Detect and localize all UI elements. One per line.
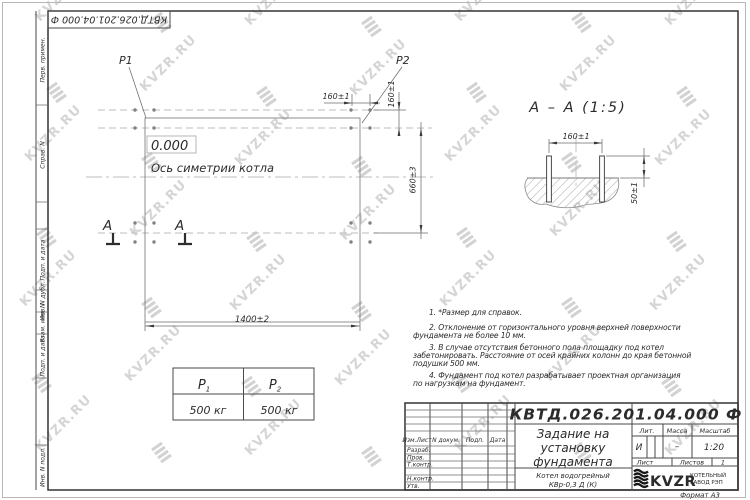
col-header-n-dokum: N докум. (432, 437, 460, 444)
drawing-sheet: KVZR.RU Перв. примен. Справ. N Подп. и д… (0, 0, 750, 500)
watermark-text (332, 326, 395, 389)
watermark-logo-icon (562, 153, 581, 172)
dim-section-spacing: 160±1 (549, 132, 602, 153)
watermark-text (227, 251, 290, 314)
note-line-3: фундамента не более 10 мм. (413, 331, 526, 340)
watermark-logo-icon (47, 83, 66, 102)
kvzr-spring-icon (634, 470, 648, 487)
top-stamp: КВТД.026.201.04.000 Ф (48, 11, 170, 28)
mass-value: – (675, 442, 680, 452)
watermark-text (652, 106, 715, 169)
load-table-header-p2: P2 (269, 378, 282, 394)
margin-label-podp-data-2: Подп. и дата (40, 335, 47, 376)
watermark-logo-icon (242, 377, 261, 396)
section-view-title: А – А (1:5) (528, 100, 627, 116)
watermark-text (242, 0, 305, 29)
watermark-text (137, 32, 200, 95)
watermark-logo-icon (352, 157, 371, 176)
watermark-text (347, 36, 410, 99)
kvzr-logo-line2: ЗАВОД РЭП (690, 480, 723, 486)
section-view: А – А (1:5) 160±1 50±1 (525, 100, 650, 208)
watermark-logo-icon (352, 302, 371, 321)
kvzr-logo: KVZR КОТЕЛЬНЫЙ ЗАВОД РЭП (634, 470, 726, 490)
format-label: Формат А3 (680, 492, 720, 500)
watermark-text (32, 392, 95, 455)
technical-notes: 1. *Размер для справок. 2. Отклонение от… (413, 308, 691, 388)
note-line-8: по нагрузкам на фундамент. (413, 379, 526, 388)
load-table: P1 P2 500 кг 500 кг (173, 368, 314, 420)
watermark-logo-icon (457, 228, 476, 247)
gost-drawing: KVZR.RU Перв. примен. Справ. N Подп. и д… (0, 0, 750, 500)
margin-label-sprav-n: Справ. N (40, 141, 47, 169)
watermark-text (662, 0, 725, 29)
row-label-tkontr: Т.контр. (407, 462, 433, 469)
watermark-text (452, 0, 515, 25)
sheets-label: Листов (679, 459, 704, 467)
watermark-logo-icon (572, 13, 591, 32)
doc-title-line3: фундамента (533, 455, 612, 469)
watermark-text (557, 32, 620, 95)
row-label-utv: Утв. (407, 483, 420, 490)
margin-label-podp-data-1: Подп. и дата (40, 239, 47, 280)
doc-number: КВТД.026.201.04.000 Ф (510, 406, 743, 424)
watermark-logo-icon (257, 87, 276, 106)
sheets-value: 1 (721, 459, 725, 467)
scale-label: Масштаб (700, 427, 731, 435)
dim-plan-height: 660±3 (374, 122, 428, 239)
col-header-podp: Подп. (466, 437, 484, 444)
level-mark: 0.000 (151, 139, 188, 154)
load-table-value-p2: 500 кг (261, 404, 298, 417)
dim-plan-height-value: 660±3 (409, 166, 418, 193)
load-table-header-p1: P1 (198, 378, 210, 394)
p2-load-label: P2 (396, 54, 410, 67)
watermark-text (337, 181, 400, 244)
note-line-1: 1. *Размер для справок. (429, 308, 522, 317)
dim-bolt-spacing-v-value: 160±1 (387, 80, 396, 107)
watermark-text (437, 247, 500, 310)
watermark-text (442, 102, 505, 165)
p1-load-label: P1 (119, 54, 133, 67)
sheet-label: Лист (636, 459, 654, 467)
row-label-nkontr: Н.контр. (407, 476, 434, 483)
watermark-logo-icon (247, 232, 266, 251)
section-letter-right: А (174, 218, 184, 234)
row-label-prov: Пров. (407, 455, 425, 462)
dim-bolt-spacing-h: 160±1 (322, 92, 380, 106)
margin-label-perv-primen: Перв. примен. (40, 37, 47, 82)
scale-value: 1:20 (704, 443, 724, 453)
note-line-6: подушки 500 мм. (413, 359, 480, 368)
anchor-bolt-right (600, 156, 605, 202)
watermark-logo-icon (467, 83, 486, 102)
load-table-value-p1: 500 кг (190, 404, 227, 417)
anchor-bolt-points (133, 108, 371, 243)
margin-label-inv-podl: Инв. N подл. (40, 447, 47, 487)
dim-bolt-height-value: 50±1 (630, 182, 639, 204)
lit-label: Лит. (639, 427, 655, 435)
top-stamp-doc-number: КВТД.026.201.04.000 Ф (51, 14, 167, 25)
row-label-razrab: Разраб. (407, 447, 431, 454)
symmetry-axis-label: Ось симетрии котла (151, 161, 274, 175)
doc-title-line1: Задание на (537, 427, 610, 441)
watermark-text (647, 251, 710, 314)
mass-label: Масса (667, 427, 688, 435)
doc-title-line2: установку (540, 441, 607, 455)
anchor-bolt-left (547, 156, 552, 202)
watermark-logo-icon (562, 298, 581, 317)
col-header-data: Дата (489, 437, 506, 444)
dim-section-spacing-value: 160±1 (562, 132, 589, 141)
product-name-line1: Котел водогрейный (536, 472, 610, 480)
dim-plan-width-value: 1400±2 (235, 315, 269, 325)
watermark-logo-icon (362, 17, 381, 36)
watermark-logo-icon (677, 87, 696, 106)
section-letter-left: А (102, 218, 112, 234)
kvzr-logo-line1: КОТЕЛЬНЫЙ (690, 472, 726, 479)
watermark-logo-icon (152, 443, 171, 462)
watermark-text (22, 102, 85, 165)
watermark-logo-icon (667, 232, 686, 251)
watermark-text (122, 322, 185, 385)
watermark-logo-icon (362, 447, 381, 466)
product-name-line2: КВр-0,3 Д (К) (549, 481, 597, 489)
col-header-izm-list: Изм.Лист (402, 437, 432, 444)
lit-value: И (636, 443, 643, 453)
watermark-text (232, 106, 295, 169)
dim-bolt-spacing-h-value: 160±1 (322, 92, 349, 101)
